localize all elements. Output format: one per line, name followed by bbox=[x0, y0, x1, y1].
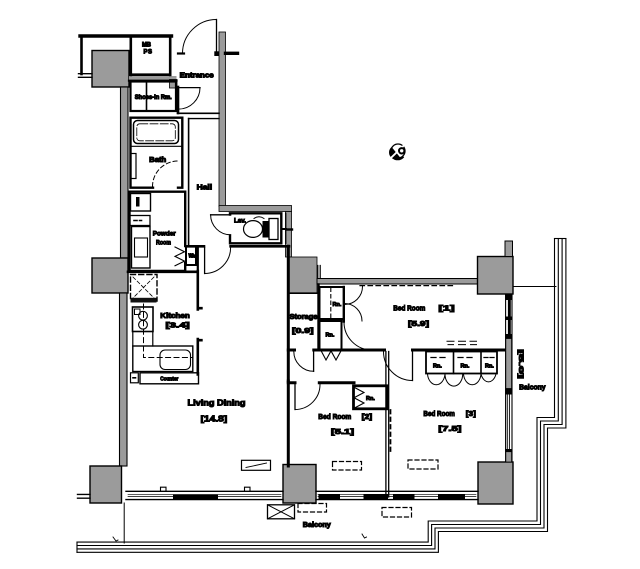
svg-text:[1]: [1] bbox=[439, 304, 456, 313]
svg-text:[14.8]: [14.8] bbox=[201, 414, 228, 423]
svg-text:Wa.: Wa. bbox=[189, 254, 197, 260]
svg-text:Powder: Powder bbox=[153, 231, 176, 238]
svg-text:[0.9]: [0.9] bbox=[292, 328, 314, 335]
svg-text:MB: MB bbox=[142, 43, 152, 49]
svg-text:Counter: Counter bbox=[160, 376, 179, 382]
svg-text:Rn.: Rn. bbox=[461, 364, 470, 370]
svg-text:Hall: Hall bbox=[197, 183, 213, 192]
svg-text:Entrance: Entrance bbox=[180, 73, 214, 80]
svg-text:[3.4]: [3.4] bbox=[166, 323, 190, 330]
svg-text:Rn.: Rn. bbox=[333, 302, 342, 308]
svg-text:Rn.: Rn. bbox=[485, 364, 494, 370]
svg-text:Kitchen: Kitchen bbox=[160, 313, 190, 320]
svg-text:[5.1]: [5.1] bbox=[331, 427, 355, 436]
svg-text:Room: Room bbox=[156, 240, 171, 247]
svg-text:Balcony: Balcony bbox=[519, 384, 546, 391]
svg-text:Lav.: Lav. bbox=[234, 218, 246, 225]
svg-text:[3]: [3] bbox=[466, 409, 477, 418]
svg-text:Balcony: Balcony bbox=[303, 522, 331, 529]
svg-text:PS: PS bbox=[144, 50, 153, 56]
svg-text:Storage: Storage bbox=[290, 314, 318, 321]
svg-text:Living Dining: Living Dining bbox=[188, 399, 246, 408]
svg-text:Bed Room: Bed Room bbox=[423, 409, 455, 418]
svg-text:[5.0]: [5.0] bbox=[517, 350, 524, 379]
svg-text:Rn.: Rn. bbox=[366, 396, 375, 402]
svg-text:Bed Room: Bed Room bbox=[393, 304, 425, 313]
svg-text:Rn.: Rn. bbox=[433, 364, 442, 370]
svg-text:Rn.: Rn. bbox=[326, 333, 335, 339]
svg-text:Shoes-In Rm.: Shoes-In Rm. bbox=[135, 95, 172, 101]
svg-text:[2]: [2] bbox=[362, 412, 373, 421]
svg-text:[5.9]: [5.9] bbox=[408, 319, 430, 328]
svg-text:Bath: Bath bbox=[149, 157, 166, 164]
svg-text:[7.5]: [7.5] bbox=[438, 424, 462, 433]
svg-text:Bed Room: Bed Room bbox=[318, 412, 351, 421]
